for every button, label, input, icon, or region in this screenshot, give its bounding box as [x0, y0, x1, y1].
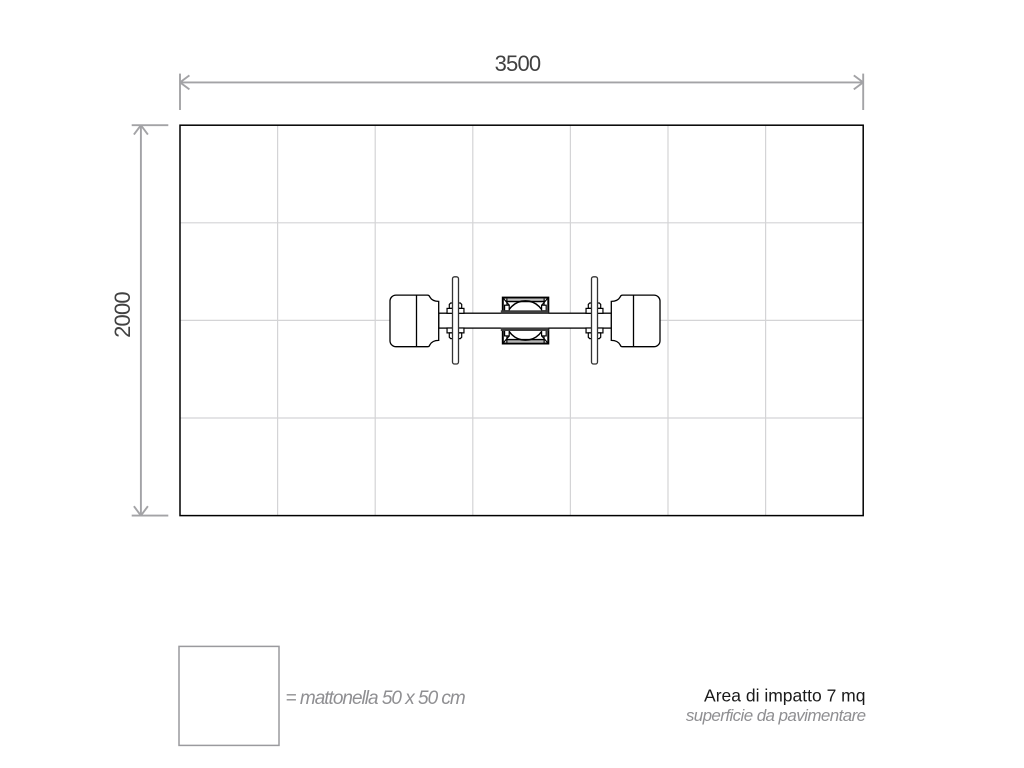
svg-text:superficie da pavimentare: superficie da pavimentare	[686, 706, 866, 725]
svg-text:3500: 3500	[495, 51, 541, 76]
svg-text:= mattonella 50 x 50 cm: = mattonella 50 x 50 cm	[286, 688, 465, 709]
svg-text:Area di impatto 7 mq: Area di impatto 7 mq	[704, 686, 865, 706]
svg-text:2000: 2000	[110, 292, 135, 338]
